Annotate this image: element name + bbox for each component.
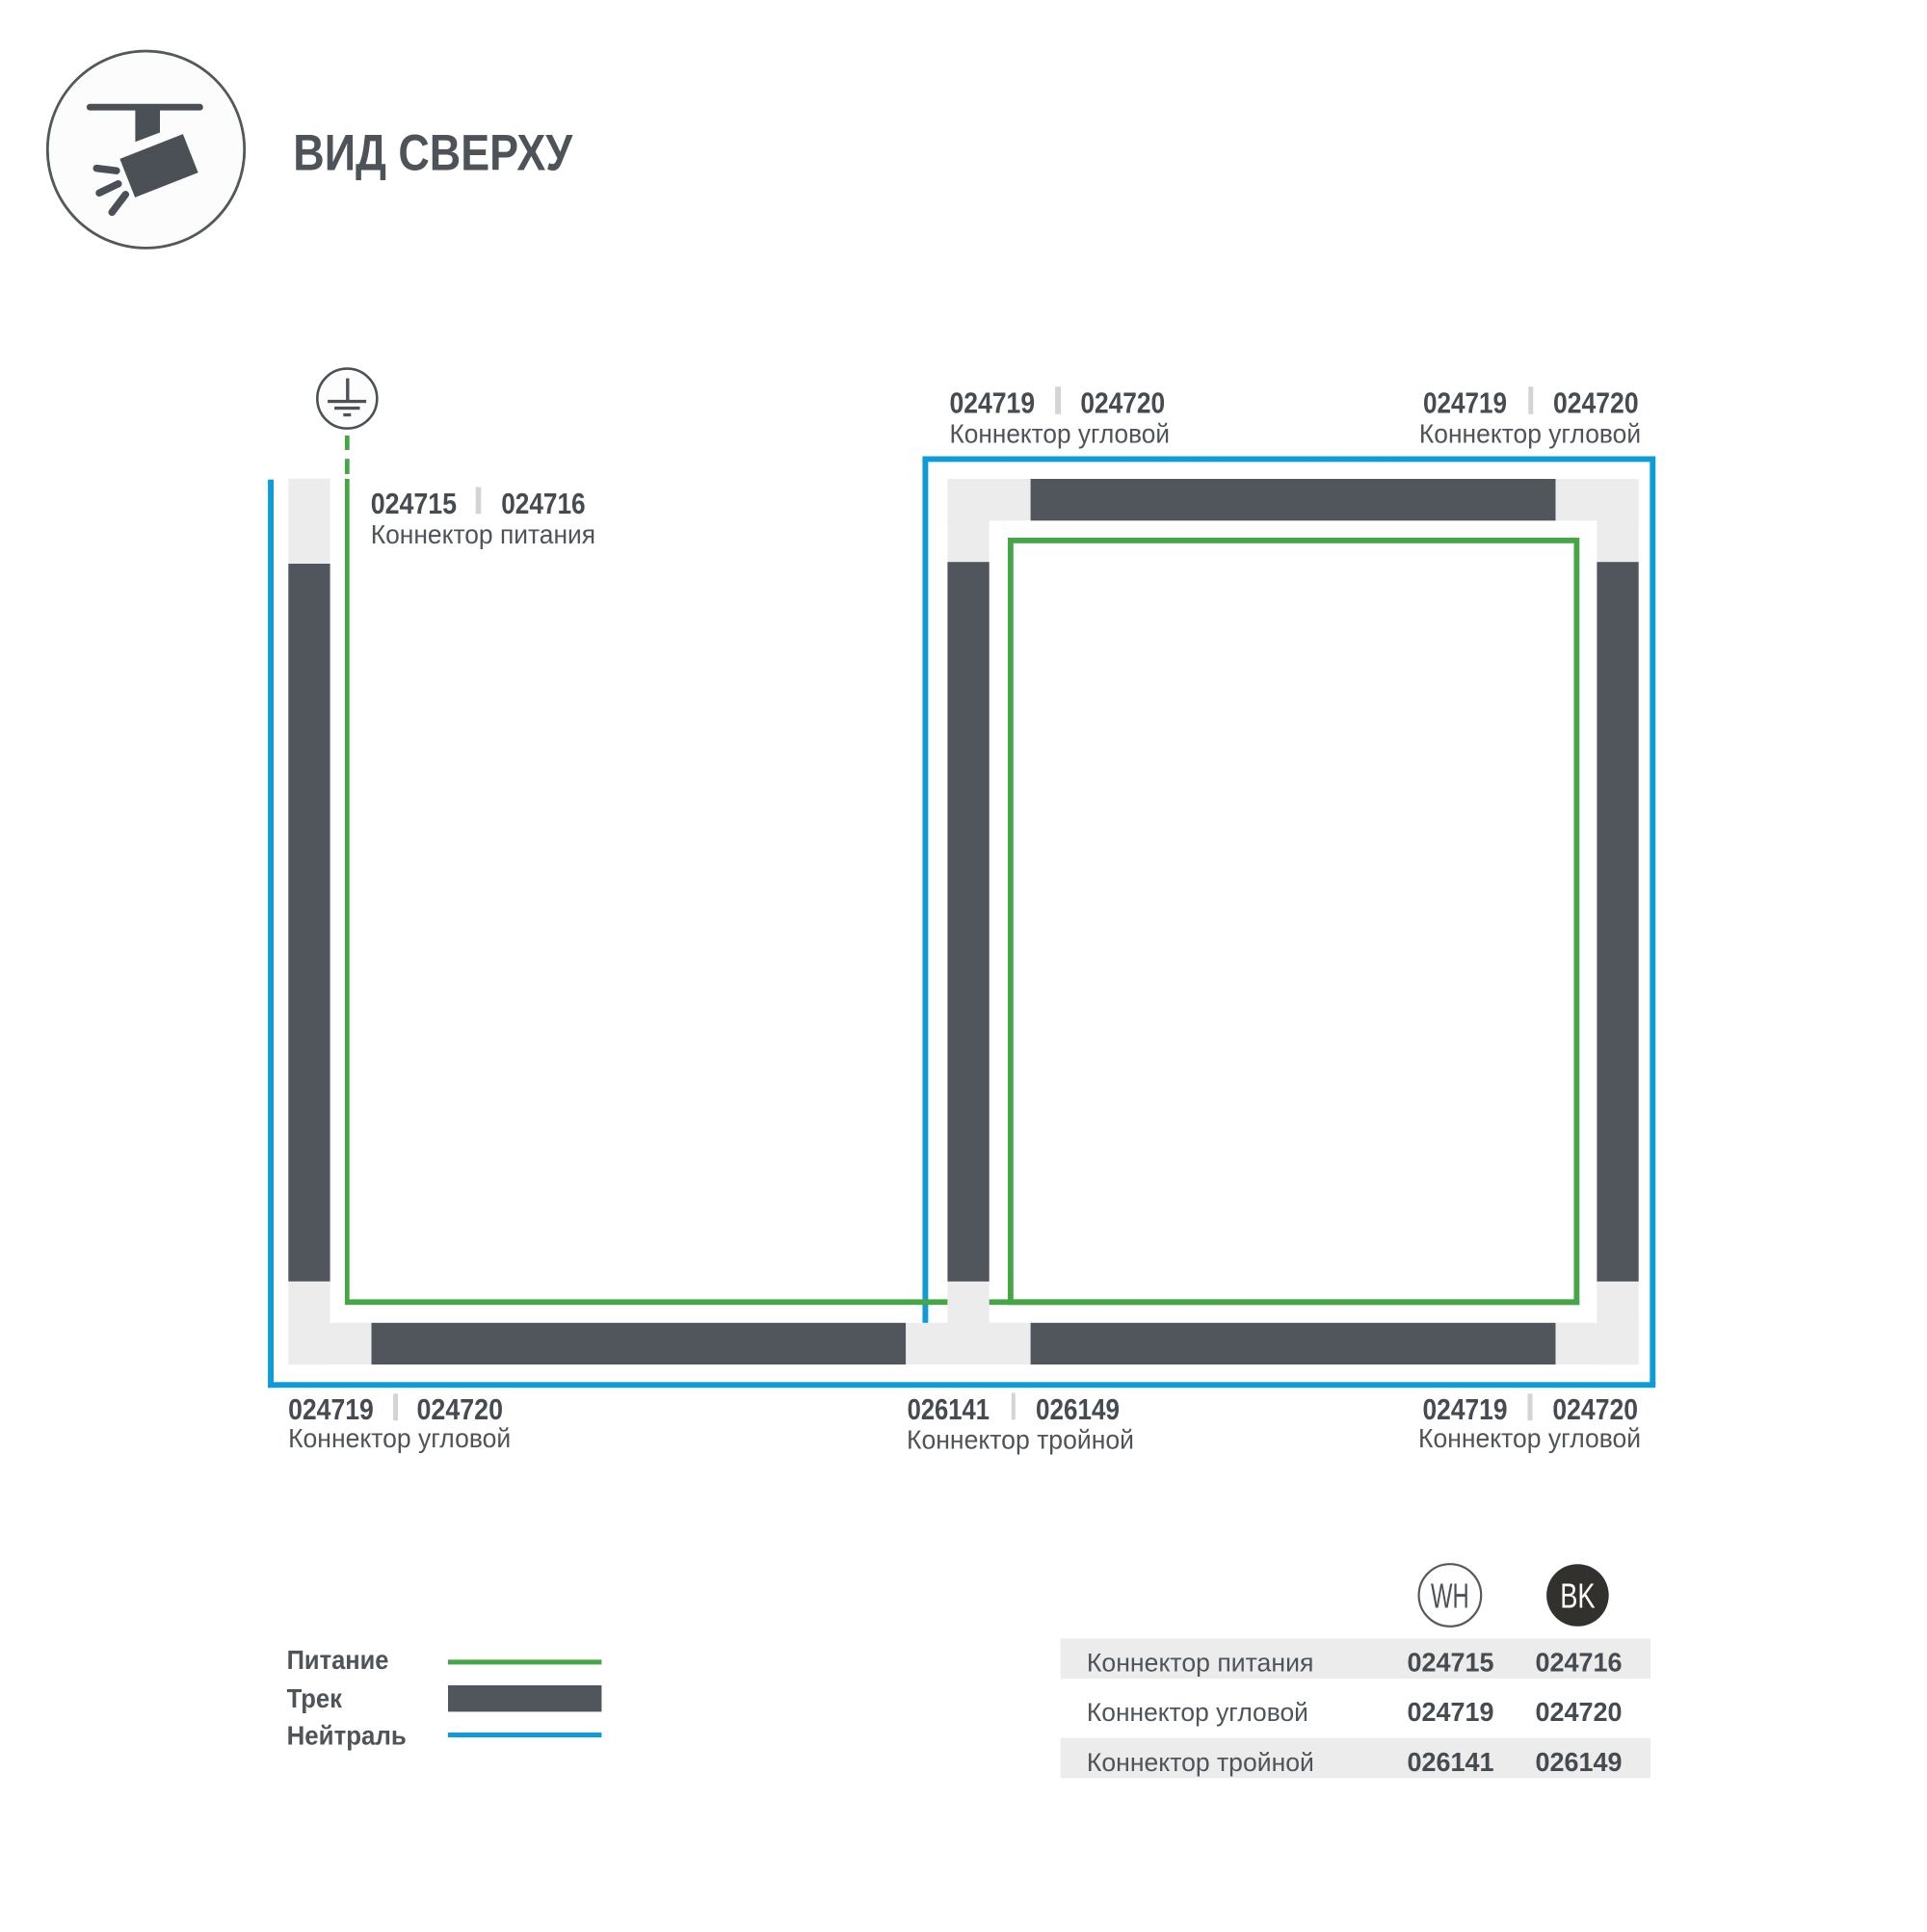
svg-text:024716: 024716 — [501, 487, 585, 520]
svg-text:Коннектор тройной: Коннектор тройной — [907, 1425, 1134, 1455]
svg-text:024719: 024719 — [1423, 1392, 1508, 1426]
svg-text:Коннектор угловой: Коннектор угловой — [288, 1423, 511, 1453]
svg-text:024715: 024715 — [1408, 1648, 1494, 1678]
svg-text:024716: 024716 — [1536, 1648, 1623, 1678]
svg-text:024719: 024719 — [1423, 385, 1507, 419]
svg-text:024719: 024719 — [288, 1392, 374, 1426]
svg-text:Коннектор тройной: Коннектор тройной — [1087, 1747, 1314, 1777]
svg-text:Коннектор угловой: Коннектор угловой — [1419, 419, 1641, 449]
svg-text:024719: 024719 — [950, 385, 1036, 419]
svg-text:Коннектор питания: Коннектор питания — [1087, 1648, 1314, 1678]
svg-text:BK: BK — [1560, 1576, 1595, 1616]
svg-text:Коннектор угловой: Коннектор угловой — [1418, 1423, 1641, 1453]
svg-text:026149: 026149 — [1036, 1392, 1120, 1426]
svg-text:Коннектор угловой: Коннектор угловой — [1087, 1697, 1308, 1727]
svg-text:024720: 024720 — [1536, 1697, 1623, 1727]
svg-text:026141: 026141 — [1408, 1747, 1494, 1777]
svg-text:024719: 024719 — [1408, 1697, 1494, 1727]
svg-text:Питание: Питание — [287, 1645, 389, 1675]
svg-text:024720: 024720 — [1080, 385, 1165, 419]
svg-text:Трек: Трек — [287, 1683, 343, 1713]
svg-text:024720: 024720 — [417, 1392, 504, 1426]
svg-text:ВИД СВЕРХУ: ВИД СВЕРХУ — [293, 124, 573, 181]
svg-text:Коннектор питания: Коннектор питания — [371, 519, 595, 549]
svg-text:Нейтраль: Нейтраль — [287, 1721, 407, 1751]
svg-text:026141: 026141 — [908, 1392, 990, 1426]
svg-text:026149: 026149 — [1536, 1747, 1623, 1777]
svg-text:024720: 024720 — [1553, 385, 1639, 419]
svg-text:Коннектор угловой: Коннектор угловой — [950, 419, 1171, 449]
svg-text:WH: WH — [1431, 1576, 1469, 1616]
svg-text:024720: 024720 — [1552, 1392, 1638, 1426]
svg-text:024715: 024715 — [371, 487, 457, 520]
